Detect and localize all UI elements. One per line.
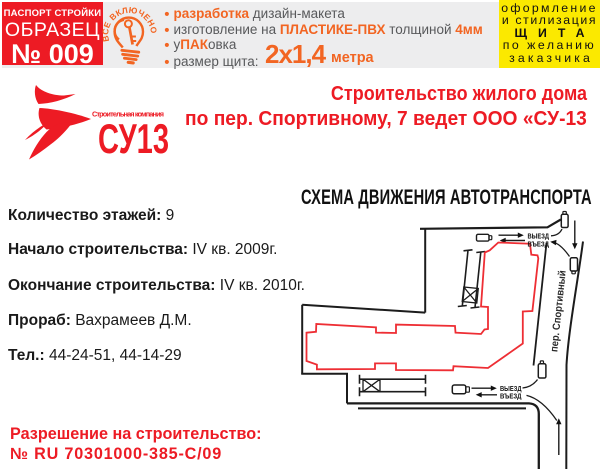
svg-text:пер. Спортивный: пер. Спортивный: [548, 270, 569, 353]
svg-text:ВЪЕЗД: ВЪЕЗД: [500, 391, 522, 400]
svg-text:ВЪЕЗД: ВЪЕЗД: [528, 239, 550, 248]
